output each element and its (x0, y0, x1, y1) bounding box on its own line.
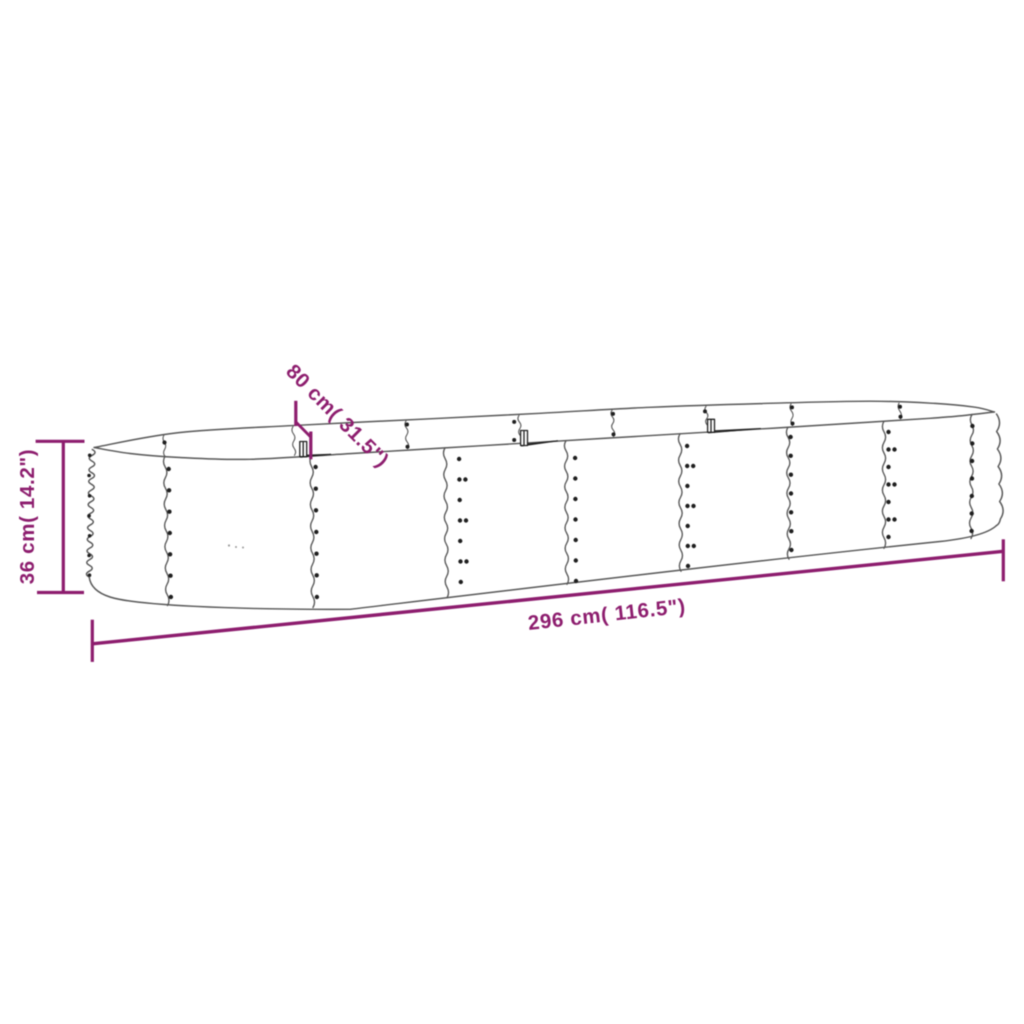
svg-text:296 cm( 116.5"): 296 cm( 116.5") (527, 595, 687, 635)
svg-text:36 cm( 14.2"): 36 cm( 14.2") (16, 449, 39, 585)
svg-text:80 cm( 31.5"): 80 cm( 31.5") (281, 360, 393, 472)
